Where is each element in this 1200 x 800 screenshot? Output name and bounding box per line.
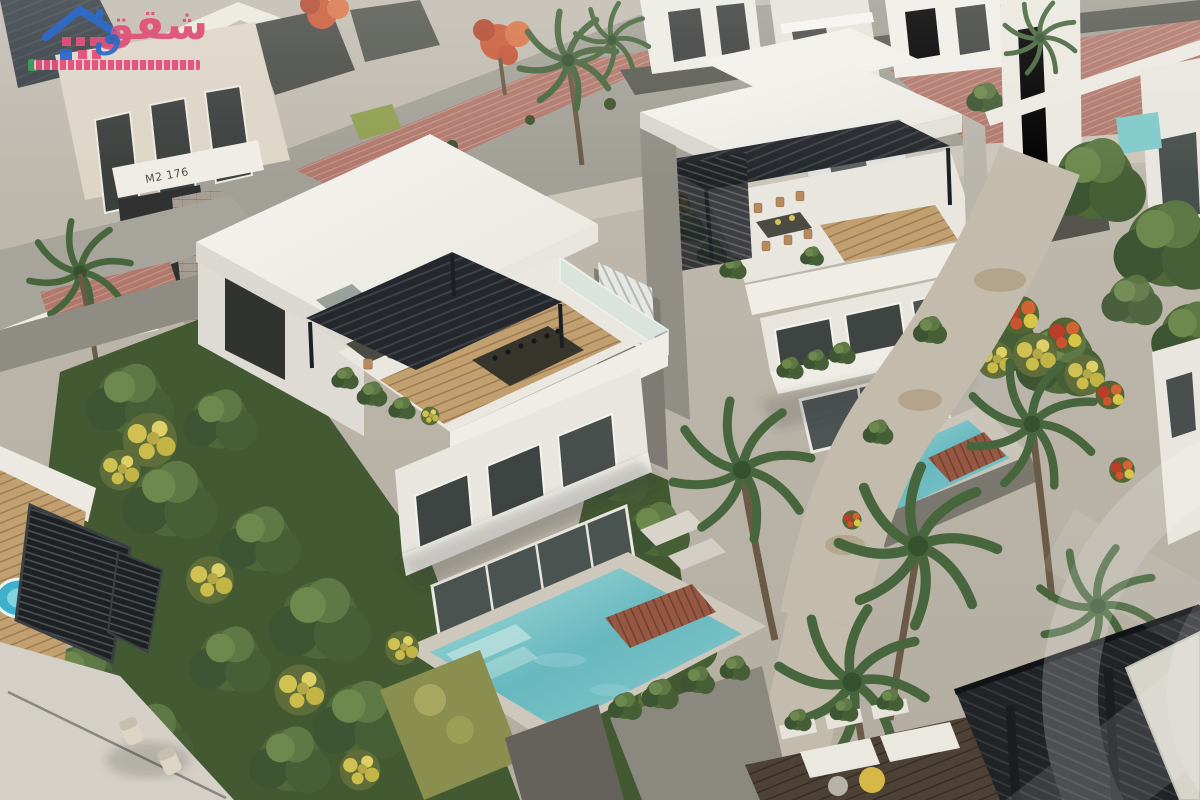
yellow-ottoman (859, 767, 885, 793)
pergola-post (1010, 705, 1016, 800)
logo-arabic-letter-blue: ق (94, 24, 122, 55)
brand-watermark-logo: شقق ق (30, 2, 208, 76)
logo-tagline-bar (34, 60, 200, 70)
water-sparkle (534, 653, 586, 667)
coffee-table (828, 776, 848, 796)
scene-render: M2 176 (0, 0, 1200, 800)
property-image: M2 176 (0, 0, 1200, 800)
